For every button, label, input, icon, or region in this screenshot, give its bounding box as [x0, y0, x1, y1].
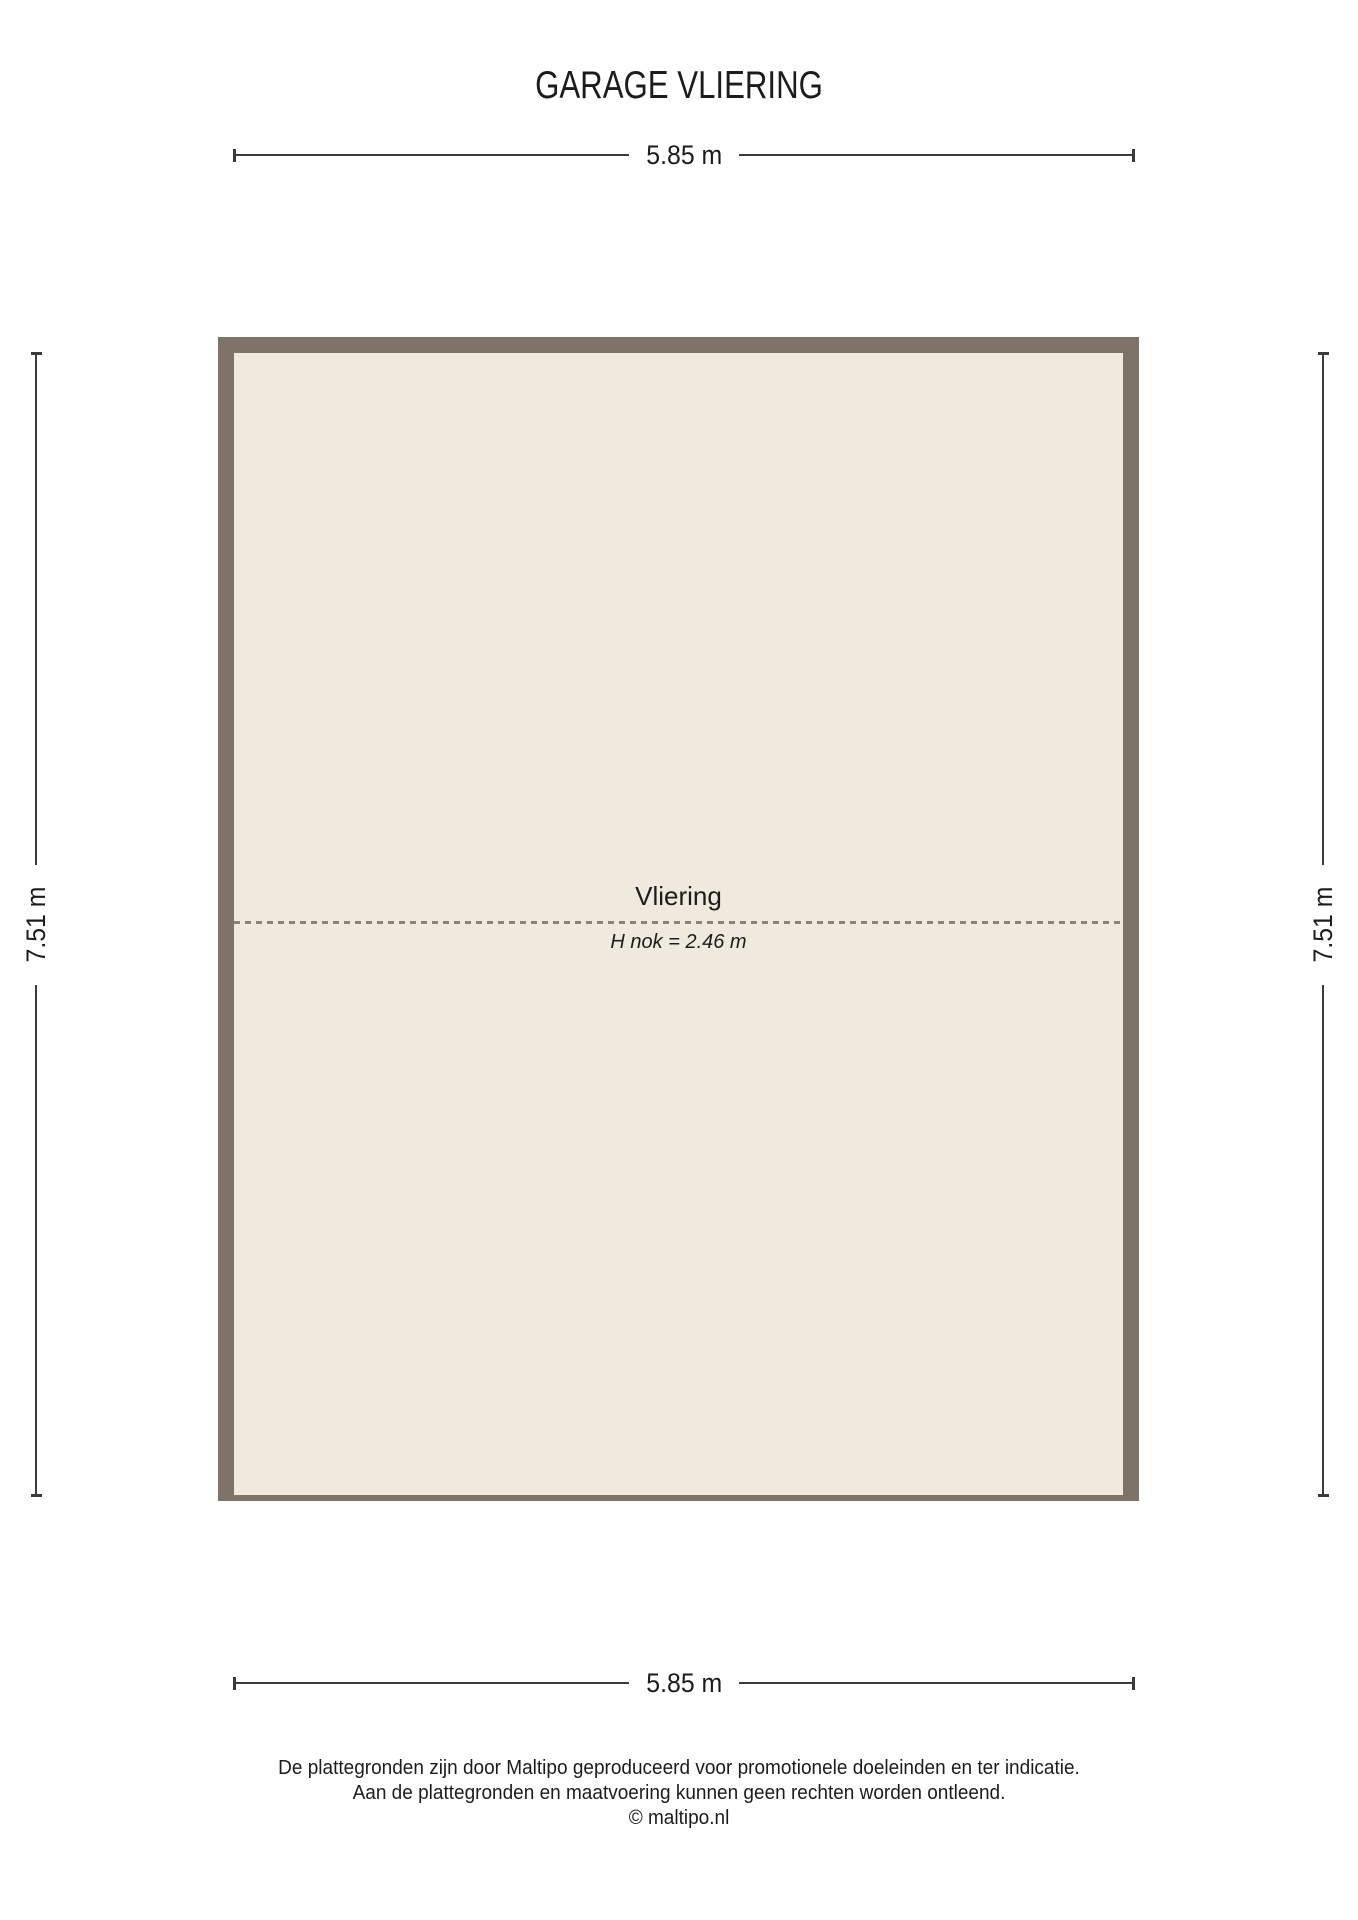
ridge-dashed-line: [234, 921, 1123, 924]
footer-disclaimer: De plattegronden zijn door Maltipo gepro…: [0, 1756, 1358, 1831]
left-height-dimension: 7.51 m: [29, 352, 43, 1497]
dimension-label-box: 7.51 m: [29, 865, 43, 985]
dimension-line: [35, 985, 37, 1495]
disclaimer-line-1: De plattegronden zijn door Maltipo gepro…: [34, 1756, 1324, 1781]
left-height-dimension-label: 7.51 m: [21, 887, 52, 963]
room-name-label: Vliering: [218, 881, 1139, 912]
right-height-dimension-label: 7.51 m: [1308, 887, 1339, 963]
dimension-line: [739, 1682, 1132, 1684]
dimension-line: [236, 1682, 629, 1684]
disclaimer-line-2: Aan de plattegronden en maatvoering kunn…: [34, 1781, 1324, 1806]
dimension-label-box: 7.51 m: [1316, 865, 1330, 985]
dimension-tick: [1318, 1494, 1329, 1497]
right-height-dimension: 7.51 m: [1316, 352, 1330, 1497]
dimension-line: [35, 355, 37, 865]
dimension-line: [236, 154, 629, 156]
room-outline-vliering: [218, 337, 1139, 1501]
top-width-dimension-label: 5.85 m: [633, 140, 735, 171]
bottom-width-dimension: 5.85 m: [233, 1676, 1135, 1690]
dimension-tick: [1132, 149, 1135, 162]
room-ridge-height-label: H nok = 2.46 m: [218, 931, 1139, 954]
dimension-tick: [1132, 1677, 1135, 1690]
dimension-line: [739, 154, 1132, 156]
bottom-width-dimension-label: 5.85 m: [633, 1668, 735, 1699]
dimension-line: [1322, 355, 1324, 865]
top-width-dimension: 5.85 m: [233, 148, 1135, 162]
copyright-line: © maltipo.nl: [34, 1806, 1324, 1831]
dimension-tick: [31, 1494, 42, 1497]
floorplan-page: GARAGE VLIERING 5.85 m 7.51 m 7.51 m Vli…: [0, 0, 1358, 1920]
dimension-line: [1322, 985, 1324, 1495]
page-title: GARAGE VLIERING: [136, 64, 1222, 108]
